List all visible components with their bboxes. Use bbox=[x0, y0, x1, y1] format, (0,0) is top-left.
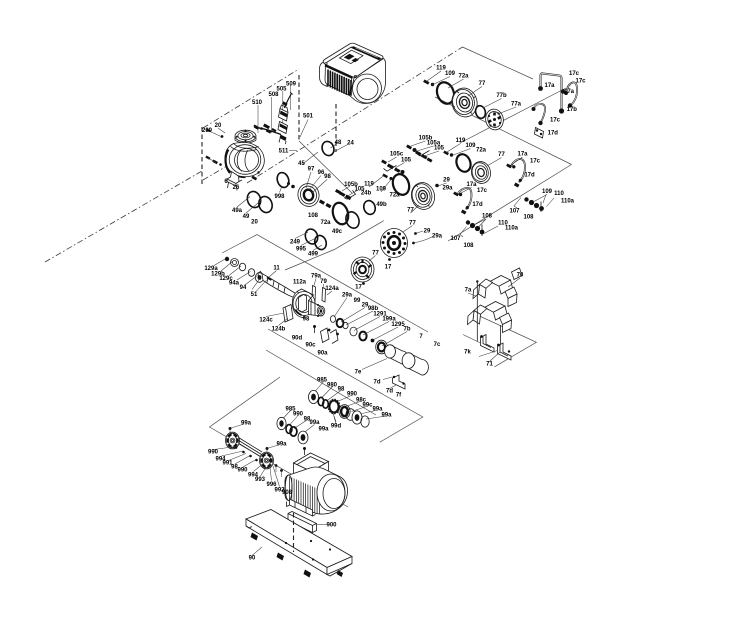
svg-text:17c: 17c bbox=[550, 118, 561, 124]
svg-text:17c: 17c bbox=[575, 79, 586, 85]
svg-text:72a: 72a bbox=[320, 220, 331, 226]
svg-text:124c: 124c bbox=[259, 318, 273, 324]
svg-text:48: 48 bbox=[335, 140, 342, 146]
svg-text:17d: 17d bbox=[548, 131, 559, 137]
svg-text:105: 105 bbox=[401, 158, 412, 164]
svg-text:99d: 99d bbox=[331, 424, 342, 430]
svg-text:29a: 29a bbox=[442, 186, 453, 192]
svg-text:908: 908 bbox=[282, 490, 293, 496]
svg-text:509: 509 bbox=[286, 82, 297, 88]
svg-text:49: 49 bbox=[243, 214, 250, 220]
svg-text:17b: 17b bbox=[567, 107, 578, 113]
svg-text:17: 17 bbox=[385, 265, 392, 271]
svg-text:17: 17 bbox=[355, 285, 362, 291]
svg-text:508: 508 bbox=[268, 92, 279, 98]
svg-text:124a: 124a bbox=[325, 286, 339, 292]
svg-text:99a: 99a bbox=[241, 421, 252, 427]
svg-text:24b: 24b bbox=[361, 191, 372, 197]
svg-text:51: 51 bbox=[251, 292, 258, 298]
svg-text:510: 510 bbox=[252, 100, 263, 106]
svg-text:990: 990 bbox=[293, 412, 304, 418]
svg-text:990: 990 bbox=[237, 468, 248, 474]
svg-text:499: 499 bbox=[308, 252, 319, 258]
svg-text:7k: 7k bbox=[464, 350, 471, 356]
svg-text:90: 90 bbox=[249, 556, 256, 562]
svg-text:108: 108 bbox=[308, 213, 319, 219]
svg-text:99a: 99a bbox=[309, 420, 320, 426]
svg-text:900: 900 bbox=[326, 523, 337, 529]
svg-text:90a: 90a bbox=[317, 351, 328, 357]
svg-text:99a: 99a bbox=[276, 442, 287, 448]
svg-text:49b: 49b bbox=[376, 202, 387, 208]
svg-text:77b: 77b bbox=[496, 93, 507, 99]
svg-text:70: 70 bbox=[517, 273, 524, 279]
svg-text:990: 990 bbox=[208, 450, 219, 456]
svg-text:17c: 17c bbox=[477, 188, 488, 194]
svg-text:124b: 124b bbox=[272, 327, 286, 333]
svg-text:7d: 7d bbox=[373, 380, 380, 386]
svg-text:108: 108 bbox=[523, 215, 534, 221]
svg-text:29: 29 bbox=[424, 229, 431, 235]
svg-text:7d: 7d bbox=[386, 389, 393, 395]
svg-text:72a: 72a bbox=[476, 148, 487, 154]
svg-text:29: 29 bbox=[443, 178, 450, 184]
svg-text:501: 501 bbox=[303, 114, 314, 120]
svg-text:109: 109 bbox=[445, 71, 456, 77]
svg-text:77: 77 bbox=[372, 251, 379, 257]
svg-text:511: 511 bbox=[279, 149, 289, 155]
svg-text:45: 45 bbox=[298, 161, 305, 167]
svg-text:99: 99 bbox=[354, 298, 361, 304]
svg-text:249: 249 bbox=[290, 240, 301, 246]
svg-text:26: 26 bbox=[233, 185, 240, 191]
svg-text:79: 79 bbox=[320, 279, 327, 285]
svg-text:108: 108 bbox=[463, 243, 474, 249]
svg-text:24: 24 bbox=[347, 141, 354, 147]
svg-text:105: 105 bbox=[434, 146, 445, 152]
svg-text:980: 980 bbox=[327, 383, 338, 389]
svg-text:110: 110 bbox=[554, 191, 564, 197]
svg-text:209: 209 bbox=[202, 128, 213, 134]
svg-text:17d: 17d bbox=[472, 202, 483, 208]
svg-text:98: 98 bbox=[303, 317, 310, 323]
svg-text:71: 71 bbox=[486, 362, 493, 368]
svg-text:17c: 17c bbox=[530, 159, 541, 165]
svg-text:29a: 29a bbox=[342, 293, 353, 299]
svg-text:77a: 77a bbox=[511, 102, 522, 108]
svg-text:97: 97 bbox=[308, 167, 315, 173]
svg-text:77: 77 bbox=[479, 81, 486, 87]
svg-text:90c: 90c bbox=[305, 343, 316, 349]
svg-text:110a: 110a bbox=[561, 199, 575, 205]
svg-text:17a: 17a bbox=[517, 152, 528, 158]
svg-text:77: 77 bbox=[409, 221, 416, 227]
svg-text:49a: 49a bbox=[232, 208, 243, 214]
svg-text:72a: 72a bbox=[458, 74, 469, 80]
svg-text:998: 998 bbox=[274, 194, 285, 200]
svg-text:107: 107 bbox=[450, 236, 461, 242]
svg-text:20: 20 bbox=[251, 220, 258, 226]
svg-text:72a: 72a bbox=[389, 193, 400, 199]
svg-text:77: 77 bbox=[498, 152, 505, 158]
svg-text:49c: 49c bbox=[332, 229, 343, 235]
svg-text:7e: 7e bbox=[355, 370, 362, 376]
svg-text:119: 119 bbox=[456, 138, 466, 144]
svg-text:94: 94 bbox=[240, 285, 247, 291]
svg-text:90d: 90d bbox=[292, 336, 303, 342]
svg-text:7a: 7a bbox=[465, 288, 472, 294]
svg-text:17a: 17a bbox=[466, 182, 477, 188]
svg-text:17c: 17c bbox=[569, 71, 580, 77]
svg-text:99a: 99a bbox=[318, 427, 329, 433]
svg-text:109: 109 bbox=[465, 143, 476, 149]
svg-text:11: 11 bbox=[273, 266, 280, 272]
svg-text:17a: 17a bbox=[564, 89, 575, 95]
svg-text:993: 993 bbox=[255, 477, 266, 483]
svg-text:17a: 17a bbox=[544, 83, 555, 89]
svg-text:98: 98 bbox=[324, 174, 331, 180]
svg-text:7b: 7b bbox=[403, 327, 410, 333]
svg-text:109: 109 bbox=[542, 189, 553, 195]
svg-text:108: 108 bbox=[482, 214, 493, 220]
svg-text:110a: 110a bbox=[505, 226, 519, 232]
svg-text:29a: 29a bbox=[432, 234, 443, 240]
svg-text:99a: 99a bbox=[381, 413, 392, 419]
svg-text:17d: 17d bbox=[524, 173, 535, 179]
svg-text:995: 995 bbox=[296, 247, 307, 253]
svg-text:94a: 94a bbox=[229, 281, 240, 287]
svg-text:98: 98 bbox=[338, 387, 345, 393]
svg-text:7c: 7c bbox=[434, 342, 441, 348]
svg-text:112a: 112a bbox=[293, 280, 307, 286]
svg-text:107: 107 bbox=[509, 209, 520, 215]
